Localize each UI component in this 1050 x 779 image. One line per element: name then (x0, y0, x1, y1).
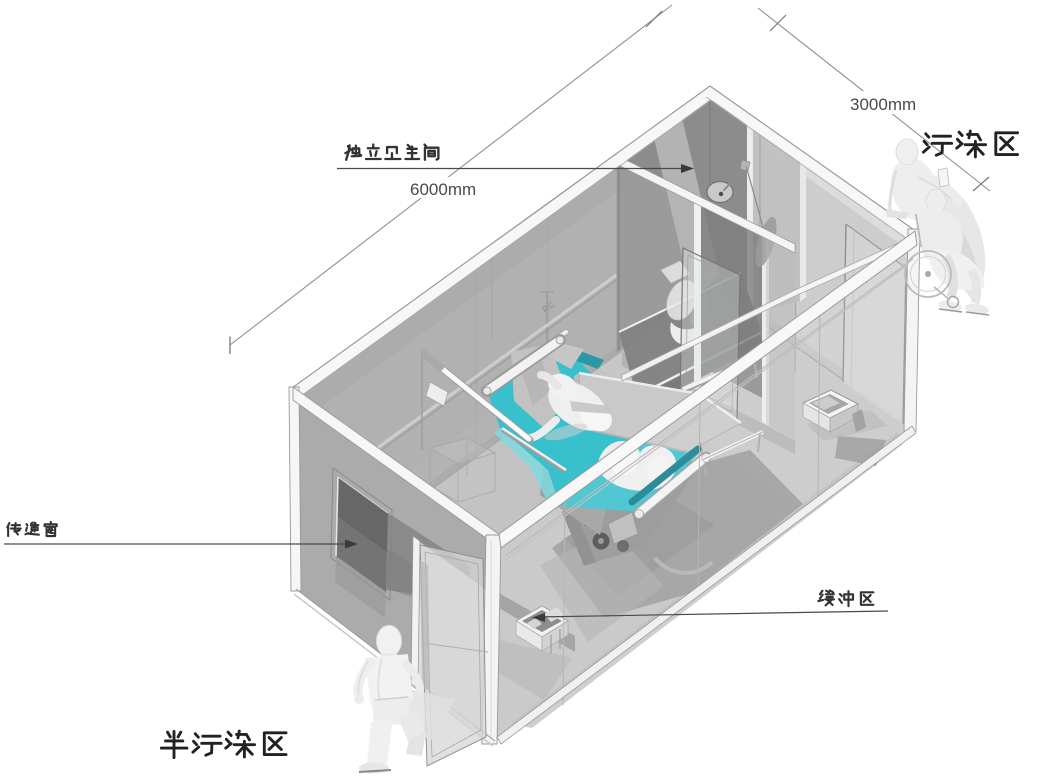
svg-text:6000mm: 6000mm (410, 180, 476, 199)
svg-text:3000mm: 3000mm (850, 95, 916, 114)
